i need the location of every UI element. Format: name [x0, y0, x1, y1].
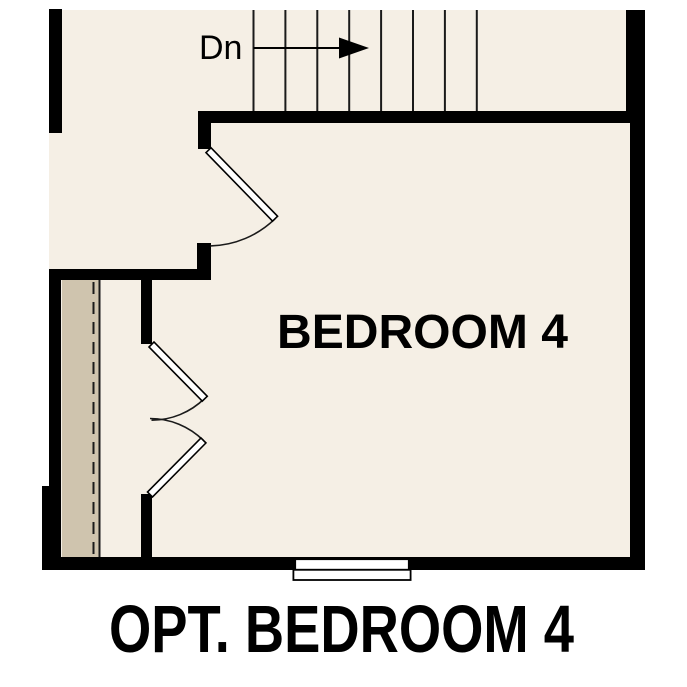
svg-text:OPT. BEDROOM 4: OPT. BEDROOM 4 — [109, 592, 574, 667]
svg-text:BEDROOM 4: BEDROOM 4 — [277, 306, 568, 359]
svg-text:Dn: Dn — [199, 29, 242, 67]
